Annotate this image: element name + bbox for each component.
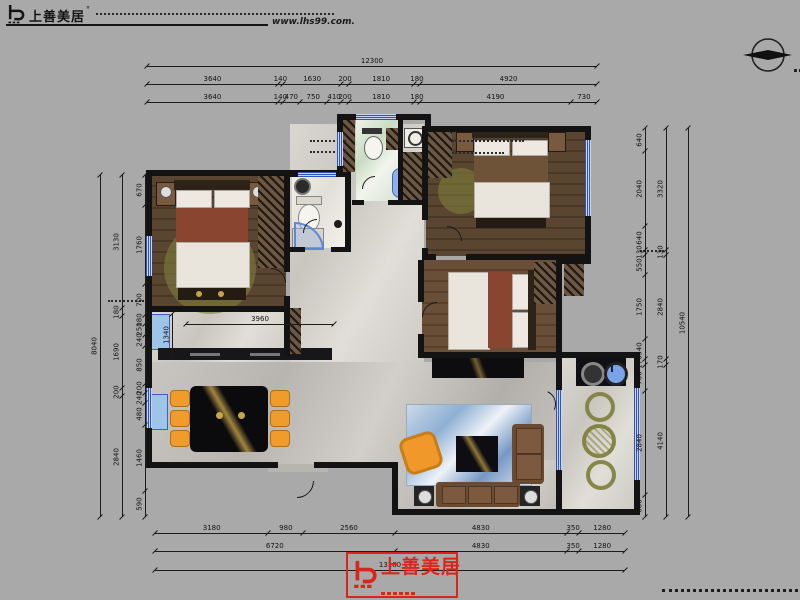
washer-drum — [408, 131, 423, 146]
wall — [284, 306, 290, 356]
brand-name: 上善美居 — [29, 6, 85, 25]
footer-brand-name: 上善美居 — [381, 552, 461, 579]
planter — [586, 460, 616, 490]
wall — [392, 509, 640, 515]
dining-chair — [170, 390, 190, 407]
toilet — [364, 136, 383, 160]
dining-chair — [270, 430, 290, 447]
wall — [392, 462, 398, 515]
coffee-table — [456, 436, 498, 472]
wall — [418, 352, 564, 358]
dining-chair — [170, 410, 190, 427]
nightstand — [548, 132, 566, 152]
bed-bench — [178, 288, 246, 300]
sofa-cushion — [468, 486, 492, 504]
sink — [294, 178, 311, 195]
pillow — [214, 190, 250, 208]
wall — [284, 172, 290, 272]
wall — [425, 126, 591, 132]
dining-chair — [270, 410, 290, 427]
wall — [422, 254, 436, 260]
window — [146, 236, 152, 276]
dotted-mark — [452, 152, 504, 154]
wall — [556, 352, 640, 358]
sofa-cushion — [442, 486, 466, 504]
wall — [398, 120, 403, 202]
wall — [422, 126, 428, 220]
window — [634, 388, 640, 480]
cabinet — [564, 262, 584, 296]
pendant-light — [238, 412, 245, 419]
window — [356, 114, 396, 120]
header-underline — [6, 24, 268, 26]
counter-handle — [250, 353, 280, 356]
shangshan-logo-mark-icon — [6, 4, 26, 26]
drum — [582, 424, 616, 458]
wall — [345, 172, 351, 252]
bed-blanket — [474, 156, 548, 185]
washing-machine — [604, 362, 628, 386]
window — [337, 132, 343, 166]
wall — [314, 462, 398, 468]
wall — [289, 247, 305, 252]
wall — [466, 254, 591, 260]
planter — [585, 392, 615, 422]
laundry-sink — [581, 362, 605, 386]
shangshan-logo-mark-icon — [352, 559, 378, 591]
sofa-cushion — [516, 428, 542, 454]
kitchen-counter — [158, 348, 332, 360]
tv-cabinet — [432, 357, 524, 378]
dining-table — [190, 386, 268, 452]
window — [298, 172, 336, 177]
lamp — [418, 490, 432, 504]
floor-drain — [334, 220, 342, 228]
wall — [556, 470, 562, 509]
bed-headboard — [174, 180, 250, 190]
dotted-mark — [108, 300, 144, 302]
footer-logo: 上善美居 — [346, 552, 458, 598]
website-link[interactable]: www.lhs99.com. — [272, 17, 355, 27]
window — [585, 140, 591, 216]
wall — [556, 258, 562, 358]
pendant-light — [216, 412, 223, 419]
blueprint-page: 上善美居 ° www.lhs99.com. — [0, 0, 800, 600]
window — [146, 388, 152, 428]
bed-blanket — [488, 272, 512, 348]
bed-bench — [476, 218, 546, 228]
decor — [196, 291, 202, 297]
dining-chair — [170, 430, 190, 447]
vanity — [386, 128, 398, 150]
lamp — [160, 186, 172, 198]
pillow — [176, 190, 212, 208]
dotted-mark — [452, 140, 524, 142]
wardrobe — [258, 176, 286, 268]
bed-sheet — [176, 242, 250, 288]
wall — [418, 260, 424, 302]
sofa-cushion — [516, 454, 542, 480]
bed-sheet — [448, 272, 490, 350]
floor-plan — [0, 0, 800, 600]
decor — [218, 291, 224, 297]
wall — [352, 200, 364, 205]
brand-logo-mark — [6, 4, 26, 30]
washer-dial — [611, 363, 613, 372]
lamp — [524, 490, 538, 504]
dotted-mark — [640, 250, 664, 252]
wardrobe — [428, 132, 452, 178]
header-dotted-line — [96, 13, 334, 15]
toilet-tank — [362, 128, 382, 134]
sofa-cushion — [494, 486, 518, 504]
kitchen-sink — [150, 314, 170, 350]
north-arrow-icon — [742, 32, 794, 88]
footer-logo-subtext — [381, 580, 461, 599]
pillow — [512, 140, 548, 156]
sideboard — [150, 394, 168, 430]
wall — [146, 306, 290, 312]
bed-sheet — [474, 182, 550, 218]
wall — [556, 358, 562, 390]
window — [556, 390, 562, 470]
footer-dotted-line — [662, 589, 798, 592]
wall — [146, 462, 278, 468]
brand-degree-mark: ° — [86, 5, 90, 14]
closet — [402, 152, 424, 202]
bed-blanket — [176, 208, 248, 245]
counter-handle — [190, 353, 220, 356]
compass-dot — [794, 69, 797, 72]
dining-chair — [270, 390, 290, 407]
